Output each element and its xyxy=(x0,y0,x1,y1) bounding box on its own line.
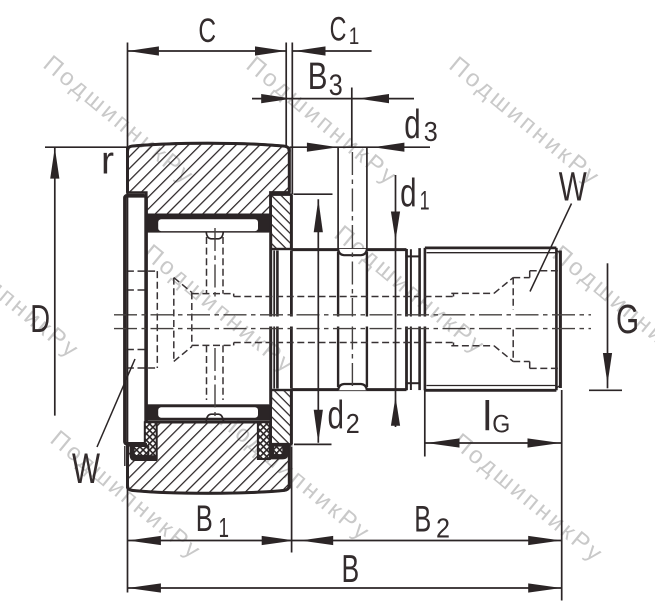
svg-text:2: 2 xyxy=(436,513,450,544)
svg-text:1: 1 xyxy=(349,23,360,50)
svg-text:d: d xyxy=(400,171,416,215)
svg-text:C: C xyxy=(198,12,216,50)
svg-text:2: 2 xyxy=(346,408,360,439)
svg-text:1: 1 xyxy=(420,185,430,215)
svg-text:B: B xyxy=(308,56,328,98)
svg-text:r: r xyxy=(101,140,114,183)
svg-text:B: B xyxy=(341,548,359,591)
svg-text:G: G xyxy=(492,411,510,439)
svg-text:B: B xyxy=(414,498,431,540)
svg-text:l: l xyxy=(483,393,492,440)
svg-text:W: W xyxy=(559,164,587,210)
svg-text:C: C xyxy=(330,11,347,49)
svg-text:D: D xyxy=(30,298,50,341)
svg-text:G: G xyxy=(616,296,639,342)
svg-text:3: 3 xyxy=(424,116,438,147)
svg-text:B: B xyxy=(196,497,213,539)
svg-text:d: d xyxy=(328,394,345,438)
svg-text:d: d xyxy=(404,101,420,147)
svg-text:3: 3 xyxy=(329,69,343,102)
svg-text:W: W xyxy=(72,446,100,493)
svg-text:1: 1 xyxy=(219,512,230,543)
